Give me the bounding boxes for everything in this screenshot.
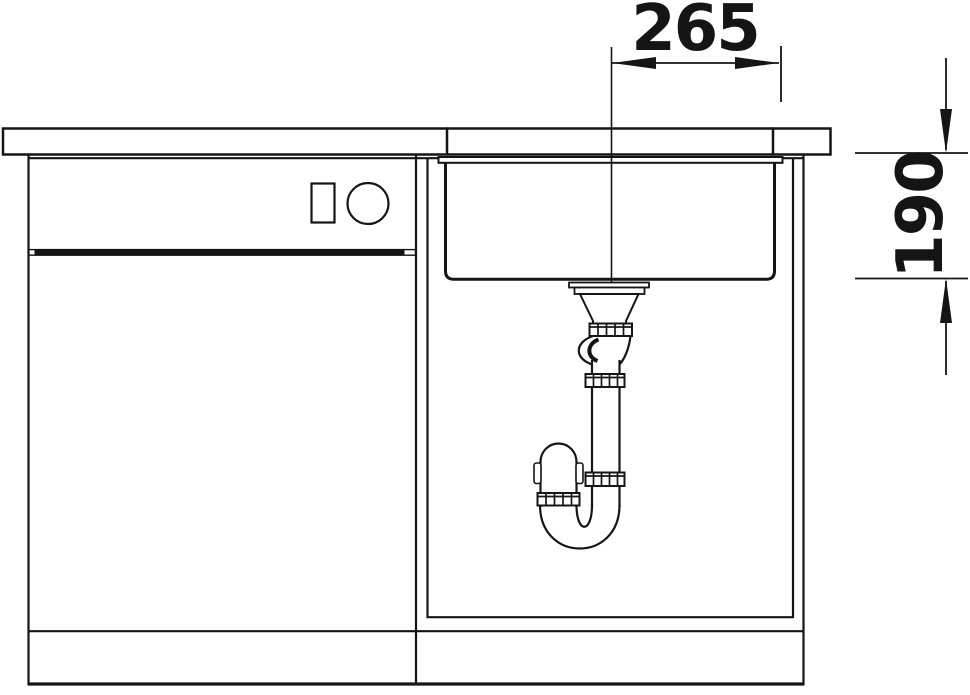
drawer-divider <box>29 250 416 256</box>
countertop <box>3 129 831 155</box>
sink <box>439 157 783 279</box>
sink-installation-section-drawing: 265 190 <box>0 0 970 695</box>
strainer-funnel <box>580 294 639 324</box>
dim-arrow-up-icon <box>940 279 952 324</box>
dimension-depth: 190 <box>855 58 968 375</box>
trap-nut-2 <box>586 374 625 387</box>
countertop-right-section <box>773 129 831 155</box>
dimension-width: 265 <box>612 0 781 102</box>
trap-nut-4 <box>538 493 580 506</box>
siphon-side-tab-right <box>576 463 583 484</box>
trap-nut-3 <box>586 473 625 487</box>
technical-drawing-page: 265 190 <box>0 0 970 695</box>
drain-elbow <box>579 336 631 365</box>
trap-nut-1 <box>590 324 633 337</box>
base-cabinets <box>28 155 805 684</box>
siphon-cap <box>541 444 577 463</box>
sink-flange <box>439 157 783 163</box>
door-symbol-rect <box>312 184 335 223</box>
siphon-side-tab-left <box>534 463 541 484</box>
dimension-width-label: 265 <box>631 0 759 66</box>
sink-bowl <box>446 163 775 279</box>
dim-arrow-down-icon <box>940 109 952 153</box>
countertop-left-section <box>3 129 447 155</box>
dimension-depth-label: 190 <box>884 151 958 279</box>
trap-u-bend <box>540 505 620 549</box>
drain-assembly <box>534 283 649 549</box>
door-symbol-circle <box>348 183 389 224</box>
